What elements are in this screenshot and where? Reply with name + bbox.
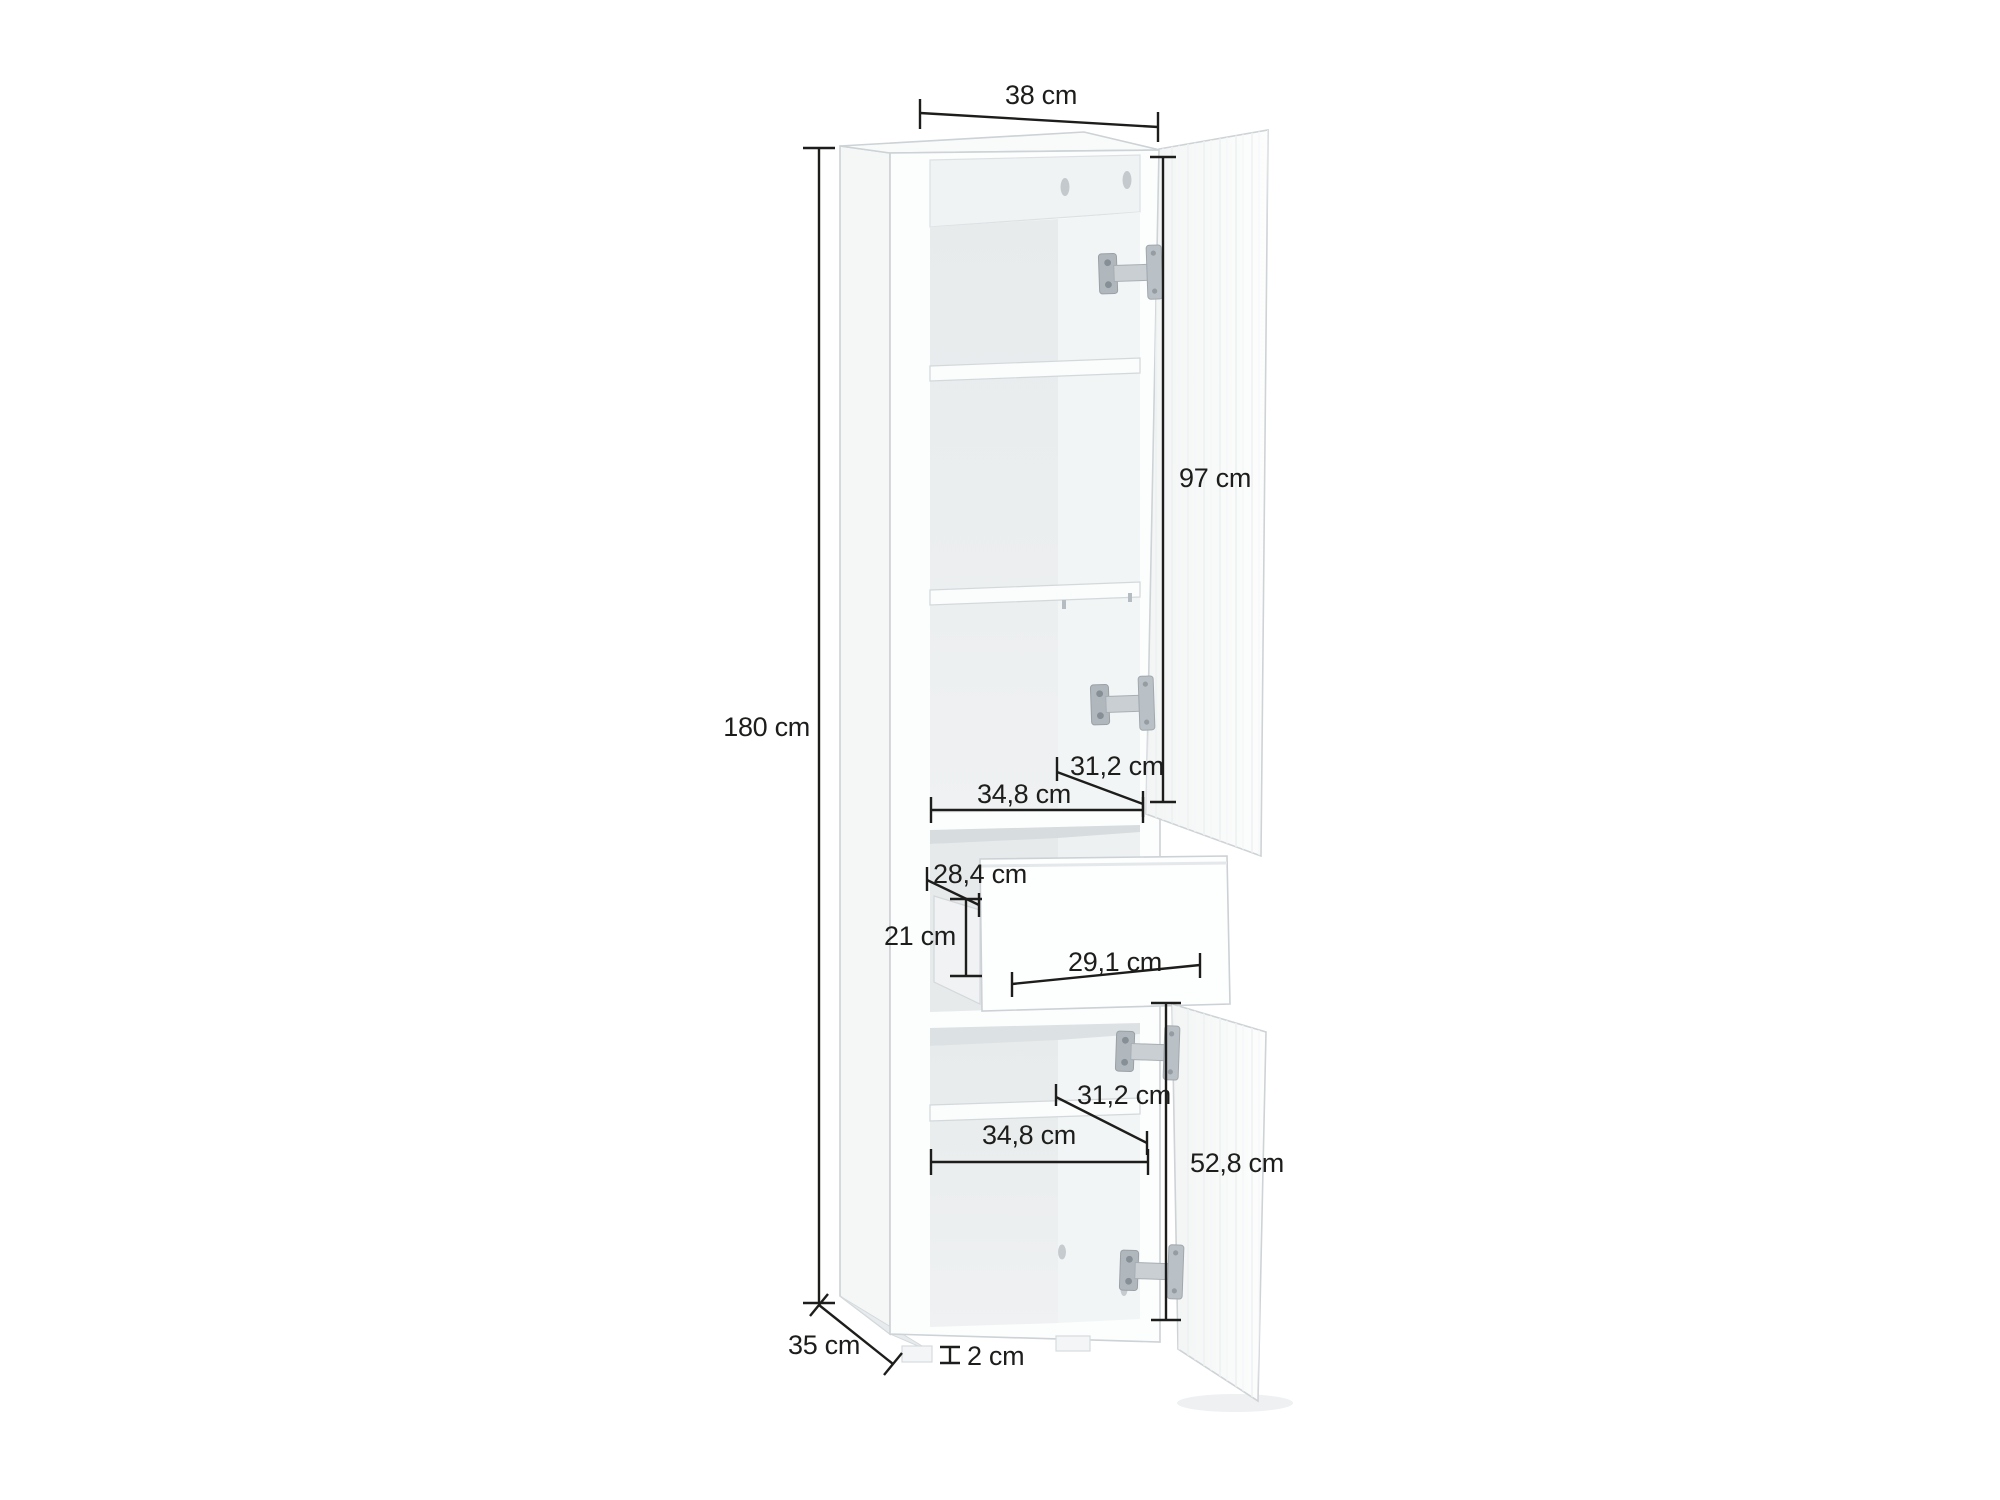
dim-plinth-height: 2 cm	[940, 1341, 1024, 1371]
screw-hole	[1061, 178, 1070, 196]
dim-label-drawer-front-width: 29,1 cm	[1068, 947, 1162, 977]
screw-hole	[1058, 1245, 1066, 1260]
upper-door-grain	[1146, 130, 1268, 856]
dim-label-overall-width: 38 cm	[1005, 80, 1077, 110]
cabinet-foot-left	[902, 1346, 932, 1362]
dim-label-overall-depth: 35 cm	[788, 1330, 860, 1360]
dim-label-lower-door-height: 52,8 cm	[1190, 1148, 1284, 1178]
cabinet-diagram-svg: 38 cm 180 cm 97 cm 31,2 cm 3	[0, 0, 2000, 1500]
dimension-line	[920, 113, 1158, 127]
cabinet-foot-right	[1056, 1336, 1090, 1351]
door-shadow	[1177, 1394, 1293, 1412]
dim-label-upper-interior-width: 34,8 cm	[977, 779, 1071, 809]
dim-overall-width: 38 cm	[920, 80, 1158, 142]
dim-label-lower-interior-width: 34,8 cm	[982, 1120, 1076, 1150]
shelf-pin	[1062, 600, 1066, 609]
cabinet-left-side-panel	[840, 146, 890, 1334]
dim-label-overall-height: 180 cm	[723, 712, 810, 742]
dim-label-plinth-height: 2 cm	[967, 1341, 1024, 1371]
dim-label-drawer-interior-width: 28,4 cm	[933, 859, 1027, 889]
dim-label-upper-interior-depth: 31,2 cm	[1070, 751, 1164, 781]
screw-hole	[1123, 171, 1132, 189]
upper-back-wall	[930, 219, 1058, 813]
lower-compartment	[930, 1023, 1140, 1327]
dimension-tick	[884, 1353, 902, 1375]
dimension-diagram: 38 cm 180 cm 97 cm 31,2 cm 3	[0, 0, 2000, 1500]
dim-label-upper-door-height: 97 cm	[1179, 463, 1251, 493]
dim-label-drawer-interior-height: 21 cm	[884, 921, 956, 951]
lower-back-wall	[930, 1040, 1058, 1327]
dim-overall-height: 180 cm	[723, 148, 835, 1303]
shelf-pin	[1128, 593, 1132, 602]
cabinet	[840, 130, 1293, 1412]
dim-label-lower-interior-depth: 31,2 cm	[1077, 1080, 1171, 1110]
lower-door-grain	[1172, 1004, 1266, 1401]
